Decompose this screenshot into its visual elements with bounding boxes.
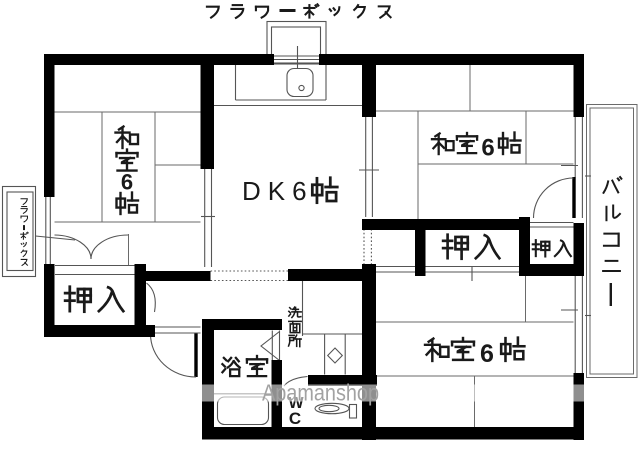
svg-text:6: 6 (121, 170, 133, 195)
svg-text:C: C (289, 409, 301, 428)
svg-text:6: 6 (480, 340, 494, 368)
svg-text:DK6: DK6 (242, 176, 314, 206)
svg-text:Apamanshop: Apamanshop (262, 380, 379, 406)
svg-text:6: 6 (481, 135, 494, 162)
